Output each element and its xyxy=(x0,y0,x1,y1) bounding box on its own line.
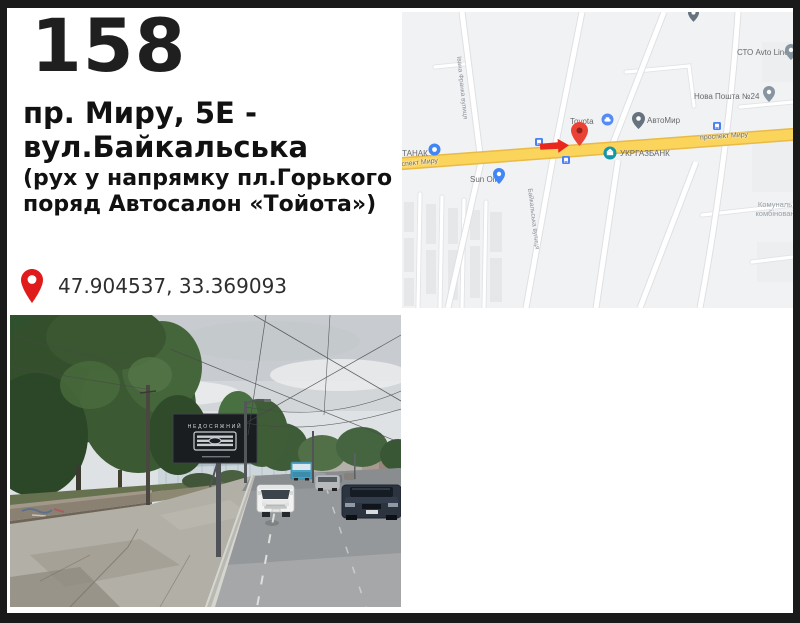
street-photo: НЕДОСЯЖНИЙ xyxy=(10,315,401,607)
ukrgasbank-poi-icon xyxy=(603,146,617,160)
map: проспект Миру проспект Миру Байкальська … xyxy=(402,12,793,308)
poi-label-tanak: ТАНАК xyxy=(402,149,428,158)
direction-note: (рух у напрямку пл.Горького поряд Автоса… xyxy=(23,166,403,219)
poi-label-sto-avto-line: СТО Avto Line xyxy=(737,48,789,57)
street-photo-scene: НЕДОСЯЖНИЙ xyxy=(10,315,401,607)
avtomir-pin-icon xyxy=(632,112,645,129)
poi-label-komunal-line1: Комуналь xyxy=(752,200,793,209)
poi-label-nova-poshta: Нова Пошта №24 xyxy=(694,92,759,101)
poi-label-ukrgasbank: УКРГАЗБАНК xyxy=(620,149,670,158)
poi-label-komunal-line2: комбінован xyxy=(752,209,793,218)
billboard-text: НЕДОСЯЖНИЙ xyxy=(188,422,243,430)
bus-stop-icon xyxy=(713,122,721,130)
poi-label-avtomir: АвтоМир xyxy=(647,116,680,125)
location-pin-icon xyxy=(21,269,43,303)
coordinates-row: 47.904537, 33.369093 xyxy=(21,269,287,303)
address: пр. Миру, 5Е - вул.Байкальська xyxy=(23,97,393,164)
white-van xyxy=(257,485,294,517)
toyota-poi-icon xyxy=(601,113,614,126)
coordinates-value: 47.904537, 33.369093 xyxy=(58,274,287,298)
billboard-number: 158 xyxy=(31,10,186,83)
sto-avto-line-pin-icon xyxy=(785,44,793,60)
location-card: 158 пр. Миру, 5Е - вул.Байкальська (рух … xyxy=(7,8,793,613)
poi-label-komunal: Комуналь комбінован xyxy=(752,200,793,219)
sun-oil-pin-icon xyxy=(493,168,505,184)
address-line-2: вул.Байкальська xyxy=(23,131,393,165)
direction-note-line-2: поряд Автосалон «Тойота») xyxy=(23,192,403,218)
direction-arrow-icon xyxy=(540,138,571,154)
map-marker-icon xyxy=(571,122,588,146)
bus xyxy=(291,462,312,481)
direction-note-line-1: (рух у напрямку пл.Горького xyxy=(23,166,403,192)
nova-poshta-pin-icon xyxy=(763,86,775,102)
tanak-poi-icon xyxy=(428,143,441,156)
partial-pin-icon xyxy=(688,12,699,22)
address-line-1: пр. Миру, 5Е - xyxy=(23,97,393,131)
bus-stop-icon xyxy=(562,156,570,164)
dark-car xyxy=(342,485,401,520)
